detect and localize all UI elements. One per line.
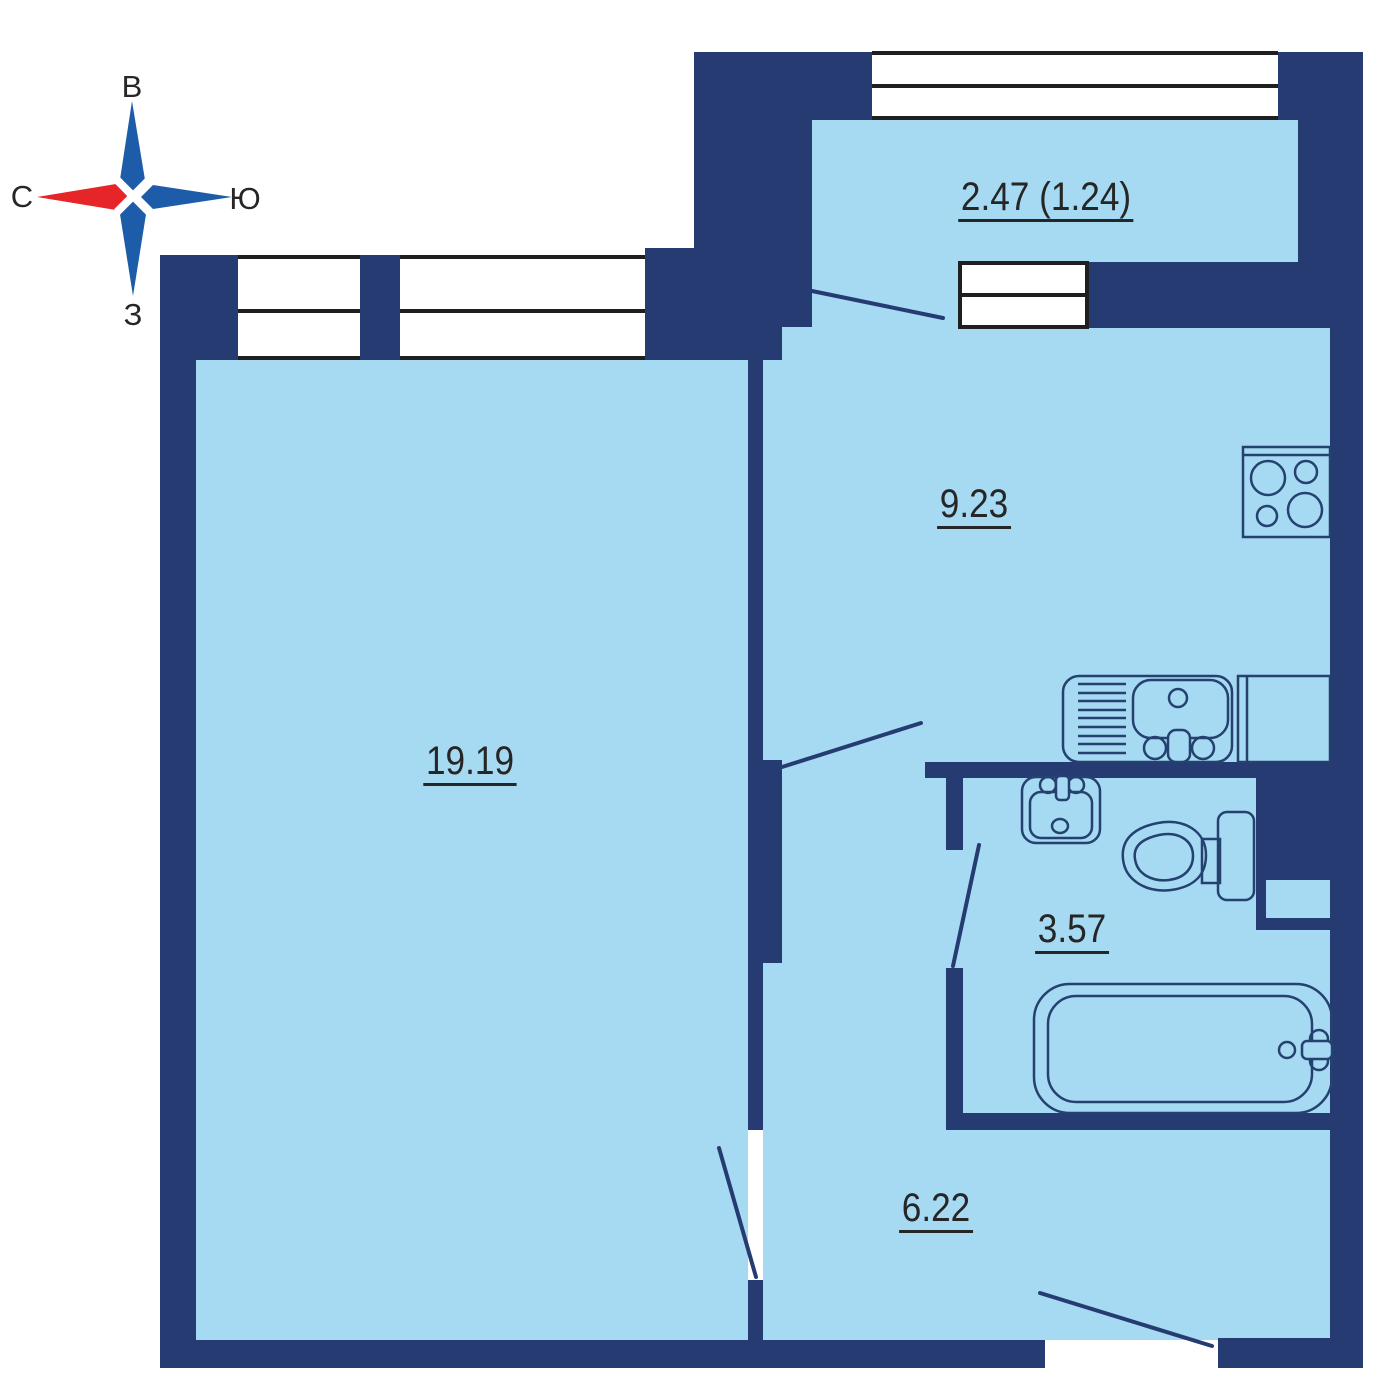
balcony-area-label: 2.47 (1.24) [958,176,1134,222]
wall-bottom-right [1218,1338,1363,1368]
wall-kitchen-pilaster [763,760,782,963]
hallway-area-label: 6.22 [899,1187,973,1233]
kitchen-area-label: 9.23 [937,483,1011,529]
wall-living-kitchen [748,360,763,1130]
wall-balcony-right [1298,120,1363,262]
compass-arrow-right [141,185,232,209]
wall-bathroom-door-stub-bottom [946,968,963,1130]
wall-window-pillar [360,255,400,360]
compass-arrow-left [37,184,128,210]
kitchen-hall-bath-floor [763,327,1330,1340]
compass-label-top: В [122,69,143,104]
wall-outer-right [1330,262,1363,1368]
wall-balcony-left [694,52,812,327]
wall-bathroom-bottom [946,1113,1330,1130]
wall-balcony-window-right [1278,52,1363,120]
living-room-area-label: 19.19 [423,740,516,786]
wall-toilet-right-block [1256,778,1330,880]
wall-balcony-window-left [812,52,872,120]
floor-plan-page: { "title": "Apartment floor plan", "comp… [0,0,1400,1400]
bathroom-area-label: 3.57 [1035,908,1109,954]
balcony-window [872,52,1278,120]
compass-label-left: С [11,179,33,214]
compass-label-right: Ю [229,181,260,216]
wall-outer-left [160,255,196,1368]
wall-bathroom-door-stub-top [946,778,963,850]
wall-corner-top-left [160,255,238,360]
bathroom-faucet-body [1056,776,1069,800]
wall-bottom-left [160,1340,1045,1368]
balcony-door-window [960,263,1087,327]
compass-label-bottom: З [124,297,143,332]
living-room-window-glass [238,257,645,360]
living-room-floor [196,360,748,1340]
wall-living-door-stub [748,1280,763,1340]
living-room-window [238,257,645,360]
floor-plan-drawing: В С Ю З [0,0,1400,1400]
bathtub-faucet-body [1302,1041,1332,1059]
kitchen-faucet-body [1168,730,1190,762]
wall-niche-bottom [1256,918,1330,930]
wall-under-balcony [1087,262,1363,328]
wall-kitchen-bathroom [925,762,1330,778]
